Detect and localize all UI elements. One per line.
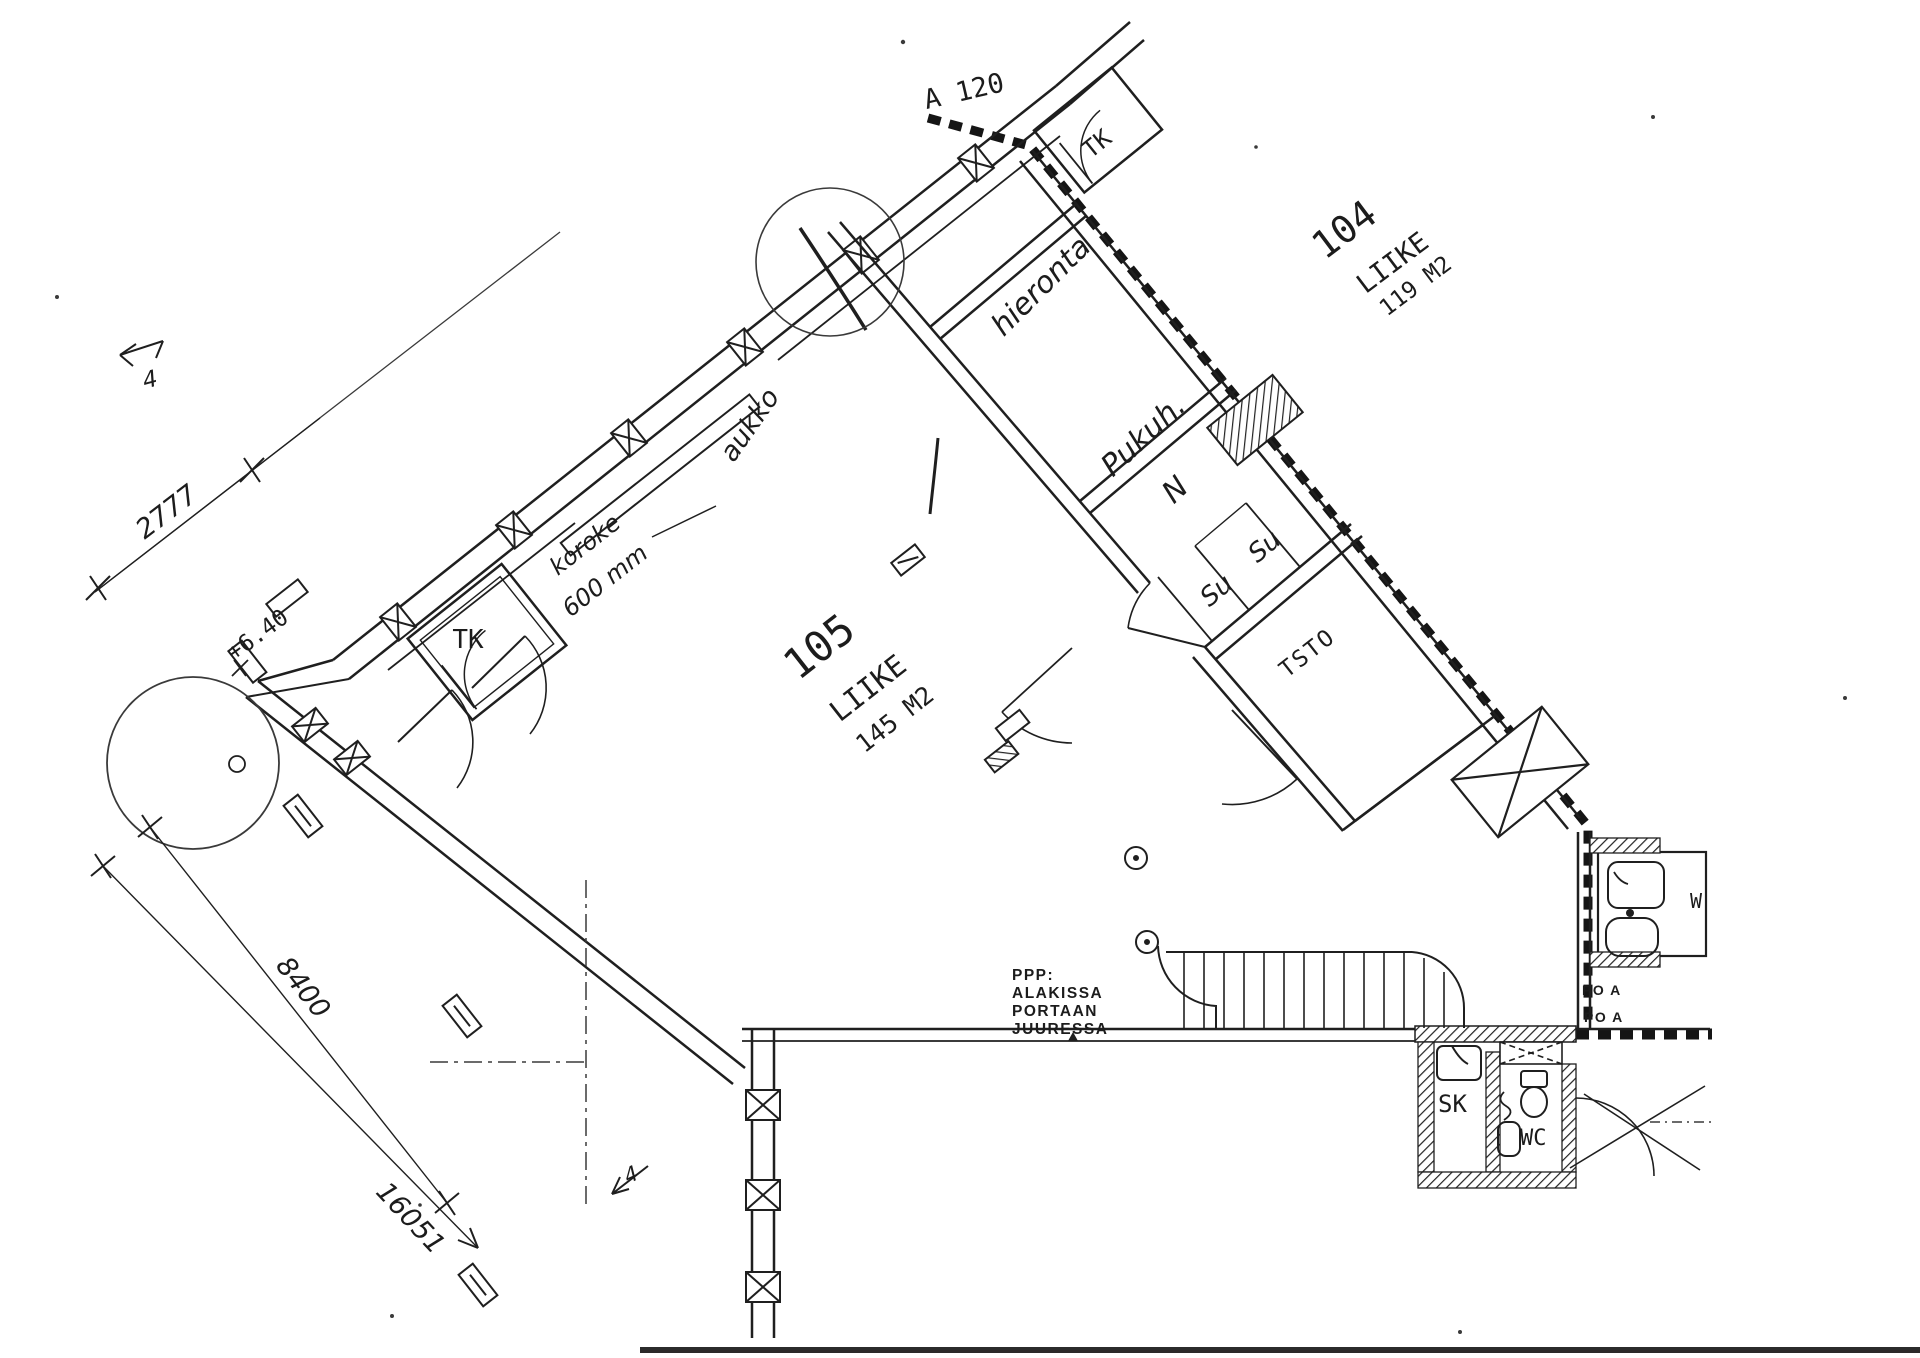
- ppp-note-line3: PORTAAN: [1012, 1003, 1098, 1020]
- wc-label: WC: [1520, 1126, 1547, 1151]
- ppp-note-line2: ALAKISSA: [1012, 985, 1103, 1002]
- wc-right-label: W: [1690, 889, 1703, 913]
- sk-label: SK: [1438, 1090, 1467, 1118]
- floor-plan-drawing: A 120 TK 104 LIIKE 119 M2 hieronta Pukuh…: [0, 0, 1920, 1358]
- ppp-note-line1: PPP:: [1012, 967, 1054, 984]
- paper-background: [0, 0, 1920, 1358]
- tk-left-label: TK: [452, 625, 484, 655]
- ppp-note-line4: JUURESSA: [1012, 1021, 1108, 1038]
- po-a-label-2: PO A: [1584, 1009, 1624, 1025]
- floor-plan-scan: A 120 TK 104 LIIKE 119 M2 hieronta Pukuh…: [0, 0, 1920, 1358]
- po-a-label-1: PO A: [1582, 982, 1622, 998]
